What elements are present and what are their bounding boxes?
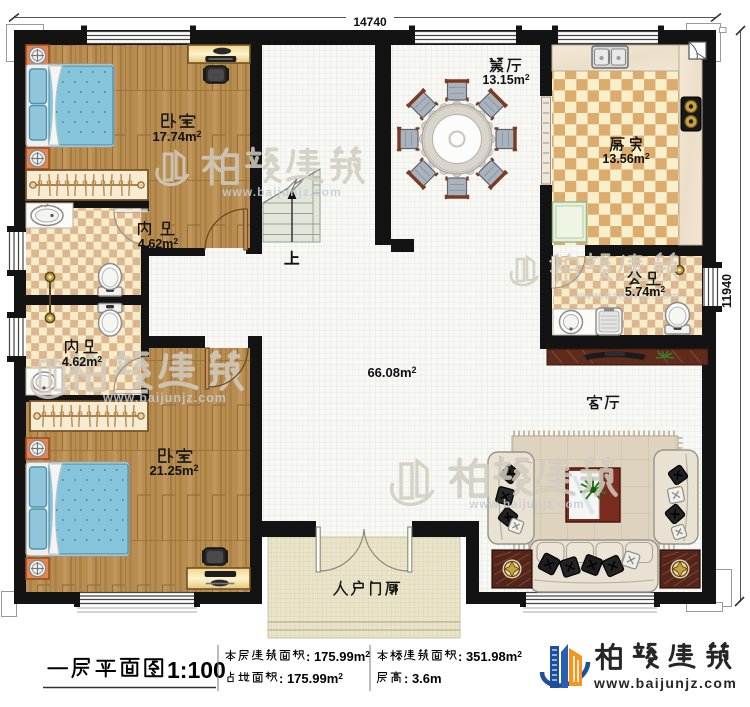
svg-text:13.15m2: 13.15m2 xyxy=(482,72,529,87)
svg-text:4.62m2: 4.62m2 xyxy=(138,236,178,251)
svg-text:: 3.6m: : 3.6m xyxy=(404,671,442,686)
svg-text:1:100: 1:100 xyxy=(167,657,226,683)
svg-text:www.baijunjz.com: www.baijunjz.com xyxy=(221,185,342,199)
svg-text:4.62m2: 4.62m2 xyxy=(62,354,102,369)
svg-text:: 175.99m2: : 175.99m2 xyxy=(306,649,370,664)
svg-text:14740: 14740 xyxy=(353,15,387,29)
svg-text:13.56m2: 13.56m2 xyxy=(602,151,649,166)
svg-text:17.74m2: 17.74m2 xyxy=(152,129,201,144)
svg-text:: 351.98m2: : 351.98m2 xyxy=(458,649,522,664)
svg-text:www.baijunjz.com: www.baijunjz.com xyxy=(468,499,584,511)
svg-text:www.baijunjz.com: www.baijunjz.com xyxy=(593,675,737,691)
svg-text:5.74m2: 5.74m2 xyxy=(625,284,665,299)
svg-text:21.25m2: 21.25m2 xyxy=(149,463,198,478)
svg-text:: 175.99m2: : 175.99m2 xyxy=(279,671,343,686)
svg-text:66.08m2: 66.08m2 xyxy=(367,365,416,380)
svg-text:11940: 11940 xyxy=(720,274,734,308)
